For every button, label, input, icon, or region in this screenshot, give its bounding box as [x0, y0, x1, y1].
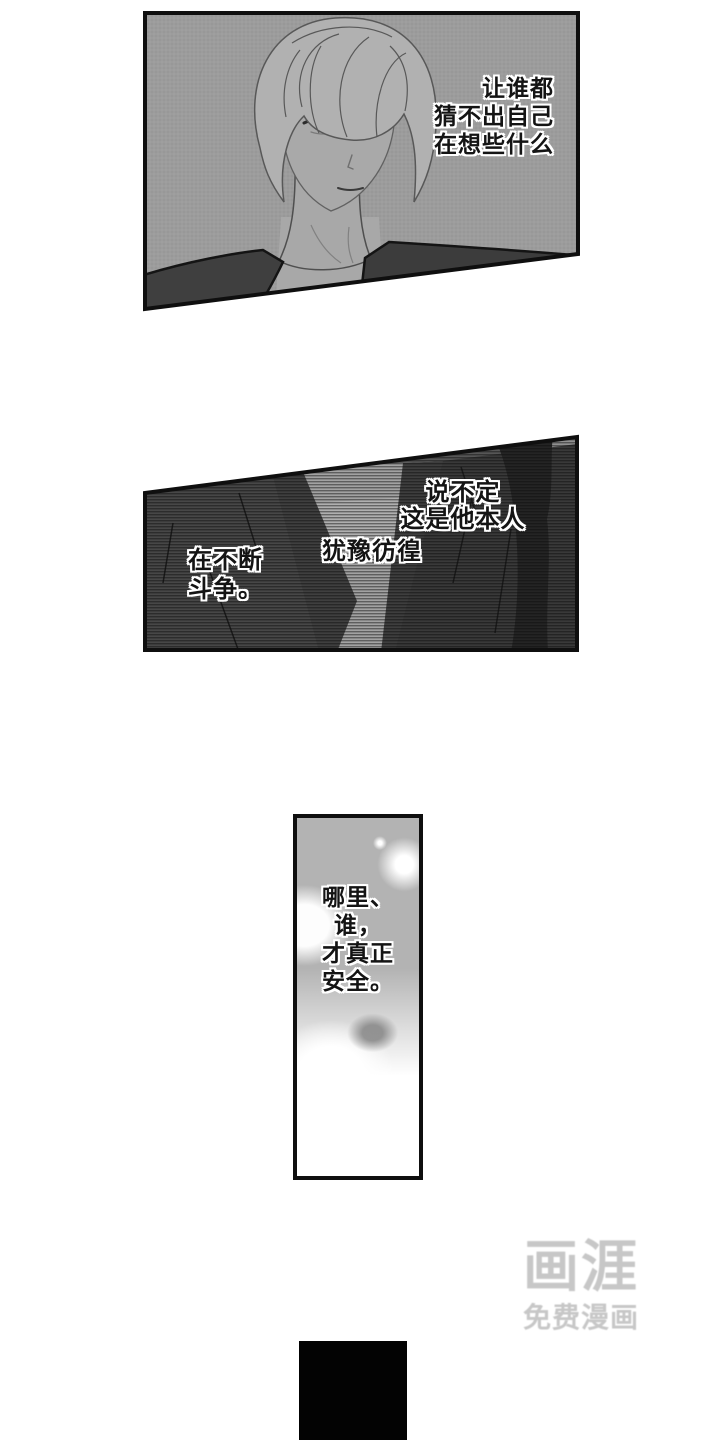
panel1-caption: 让谁都 猜不出自己 在想些什么: [434, 75, 554, 159]
panel2-caption-center: 犹豫彷徨: [322, 537, 422, 565]
caption-line: 在想些什么: [434, 131, 554, 159]
panel-suit-torso: 说不定 这是他本人 犹豫彷徨 在不断 斗争。: [143, 433, 579, 652]
caption-line: 让谁都: [434, 75, 554, 103]
panel-1-artwork: [143, 11, 580, 312]
caption-line: 斗争。: [188, 575, 263, 604]
watermark-logo: 画涯: [523, 1236, 653, 1300]
watermark: 画涯 免费漫画: [523, 1236, 653, 1334]
panel-blurry-lights: 哪里、 谁， 才真正 安全。: [293, 814, 423, 1180]
caption-line: 这是他本人: [388, 506, 538, 533]
panel2-caption-left: 在不断 斗争。: [188, 546, 263, 604]
caption-line: 犹豫彷徨: [322, 537, 422, 565]
caption-line: 猜不出自己: [434, 103, 554, 131]
caption-line: 在不断: [188, 546, 263, 575]
panel-man-portrait: 让谁都 猜不出自己 在想些什么: [143, 11, 580, 312]
manga-reader-page[interactable]: 让谁都 猜不出自己 在想些什么: [0, 0, 720, 1440]
watermark-tagline: 免费漫画: [523, 1302, 653, 1334]
next-panel-peek: [299, 1341, 407, 1440]
panel3-caption: 哪里、 谁， 才真正 安全。: [297, 884, 419, 996]
panel2-caption-right: 说不定 这是他本人: [388, 479, 538, 533]
caption-line: 才真正: [297, 940, 419, 968]
caption-line: 安全。: [297, 968, 419, 996]
caption-line: 说不定: [388, 479, 538, 506]
caption-line: 谁，: [297, 912, 419, 940]
caption-line: 哪里、: [297, 884, 419, 912]
